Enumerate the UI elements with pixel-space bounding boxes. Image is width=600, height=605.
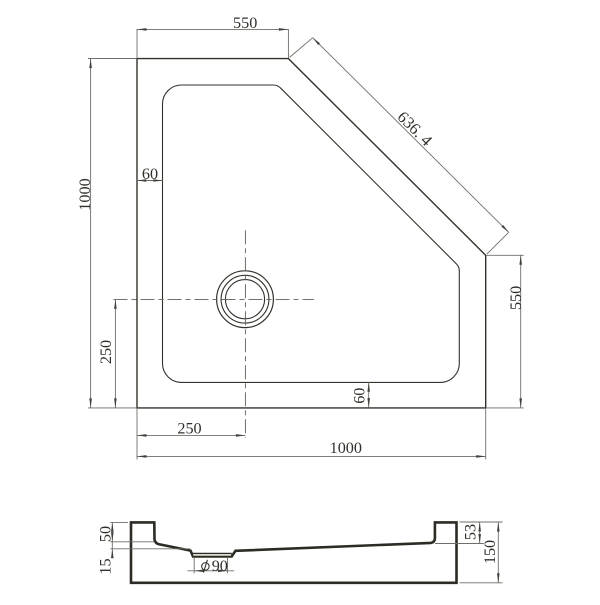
svg-text:250: 250 <box>177 419 201 437</box>
svg-text:550: 550 <box>233 14 257 32</box>
svg-text:60: 60 <box>350 388 368 404</box>
svg-text:15: 15 <box>97 558 115 574</box>
svg-text:1000: 1000 <box>76 178 94 210</box>
svg-text:90: 90 <box>212 557 228 575</box>
svg-text:60: 60 <box>142 165 158 183</box>
svg-text:550: 550 <box>507 286 525 310</box>
svg-text:53: 53 <box>462 524 480 540</box>
svg-text:250: 250 <box>97 340 115 364</box>
svg-text:150: 150 <box>481 540 499 564</box>
svg-text:50: 50 <box>97 526 115 542</box>
svg-text:1000: 1000 <box>330 439 362 457</box>
